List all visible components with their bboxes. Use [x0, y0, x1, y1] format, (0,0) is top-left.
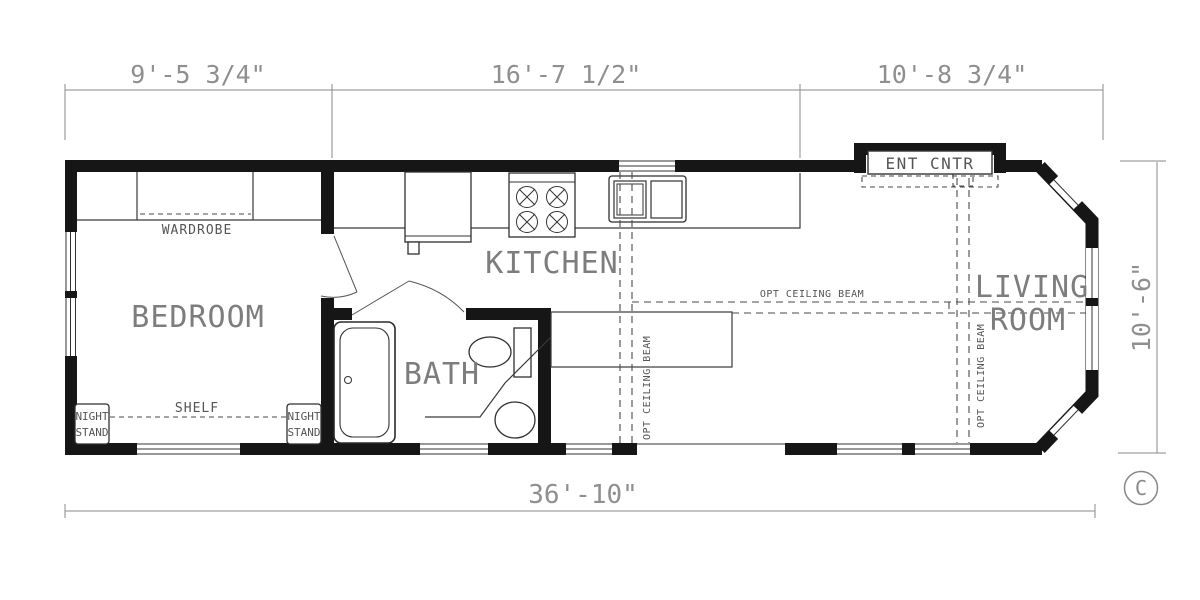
revision-mark-label: C: [1135, 476, 1147, 500]
room-label-bedroom: BEDROOM: [131, 300, 264, 335]
beam-label-kitchen: OPT CEILING BEAM: [642, 336, 653, 440]
room-label-bath: BATH: [404, 357, 480, 392]
beam-label-living: OPT CEILING BEAM: [976, 324, 987, 428]
ent-center: ENT CNTR: [862, 151, 998, 187]
bath-door: [352, 281, 464, 315]
dim-bottom-label: 36'-10": [528, 480, 638, 510]
room-label-living-2: ROOM: [990, 303, 1066, 338]
revision-mark: C: [1125, 472, 1158, 505]
dim-top-left-label: 9'-5 3/4": [130, 60, 265, 89]
ent-cntr-label: ENT CNTR: [885, 154, 974, 173]
bathtub: [334, 322, 395, 443]
doors: [321, 236, 464, 315]
nightstand-right-label-2: STAND: [287, 426, 320, 439]
floor-plan-svg: 9'-5 3/4" 16'-7 1/2" 10'-8 3/4" 10'-6" 3…: [0, 0, 1200, 600]
stove: [509, 173, 575, 237]
nightstand-left-label-1: NIGHT: [75, 410, 108, 423]
room-label-kitchen: KITCHEN: [485, 246, 618, 281]
refrigerator: [405, 172, 471, 254]
floor-plan-page: 9'-5 3/4" 16'-7 1/2" 10'-8 3/4" 10'-6" 3…: [0, 0, 1200, 600]
room-label-living-1: LIVING: [975, 270, 1089, 305]
dim-top-right-label: 10'-8 3/4": [877, 60, 1028, 89]
nightstand-left-label-2: STAND: [75, 426, 108, 439]
nightstand-right-label-1: NIGHT: [287, 410, 320, 423]
shelf-label: SHELF: [175, 401, 219, 416]
beam-label-horizontal: OPT CEILING BEAM: [760, 289, 864, 300]
wardrobe: [77, 172, 321, 220]
dim-right-label: 10'-6": [1127, 262, 1156, 352]
bedroom-door: [321, 236, 357, 297]
wardrobe-label: WARDROBE: [162, 223, 233, 238]
dim-top-center-label: 16'-7 1/2": [491, 60, 642, 89]
